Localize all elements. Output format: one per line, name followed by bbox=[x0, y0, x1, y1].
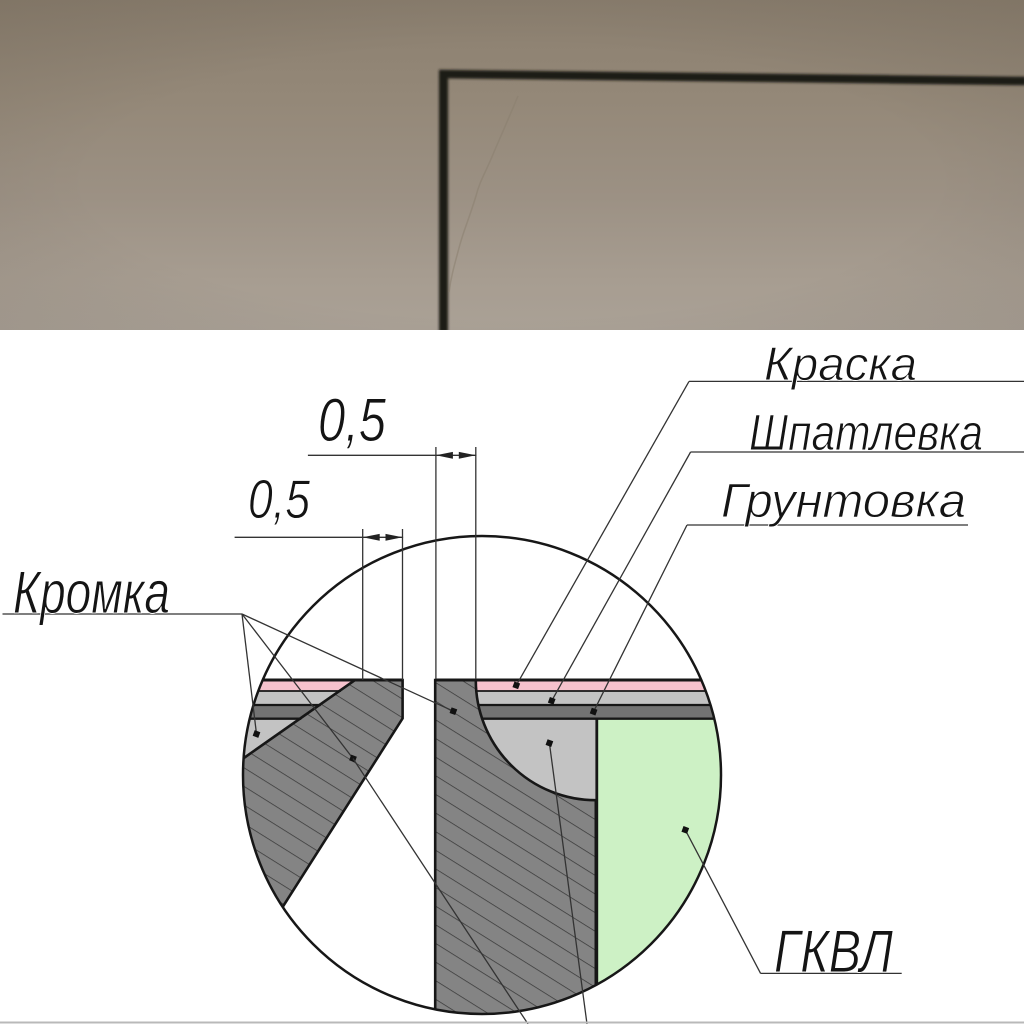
svg-text:0,5: 0,5 bbox=[318, 386, 387, 454]
svg-text:ГКВЛ: ГКВЛ bbox=[774, 918, 894, 985]
svg-text:Шпатлевка: Шпатлевка bbox=[749, 404, 983, 461]
svg-text:0,5: 0,5 bbox=[248, 468, 310, 530]
svg-text:Кромка: Кромка bbox=[13, 559, 170, 626]
svg-text:Грунтовка: Грунтовка bbox=[721, 475, 966, 528]
svg-text:Краска: Краска bbox=[764, 337, 917, 390]
